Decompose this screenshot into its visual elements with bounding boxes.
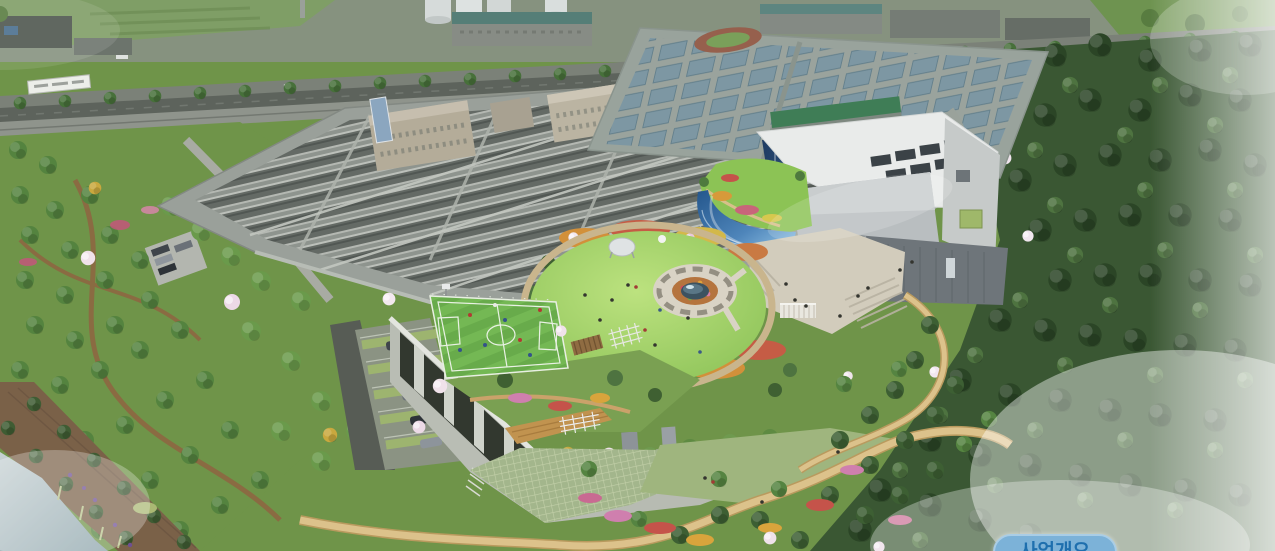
aerial-rendering	[0, 0, 1275, 551]
factory-teal-roof	[452, 12, 592, 24]
blossom-tree	[81, 251, 95, 265]
aerial-rendering-canvas: 사업개요	[0, 0, 1275, 551]
business-overview-button[interactable]: 사업개요	[993, 534, 1117, 551]
white-balustrade	[780, 304, 816, 318]
fountain	[653, 264, 737, 318]
parasol	[658, 235, 666, 243]
